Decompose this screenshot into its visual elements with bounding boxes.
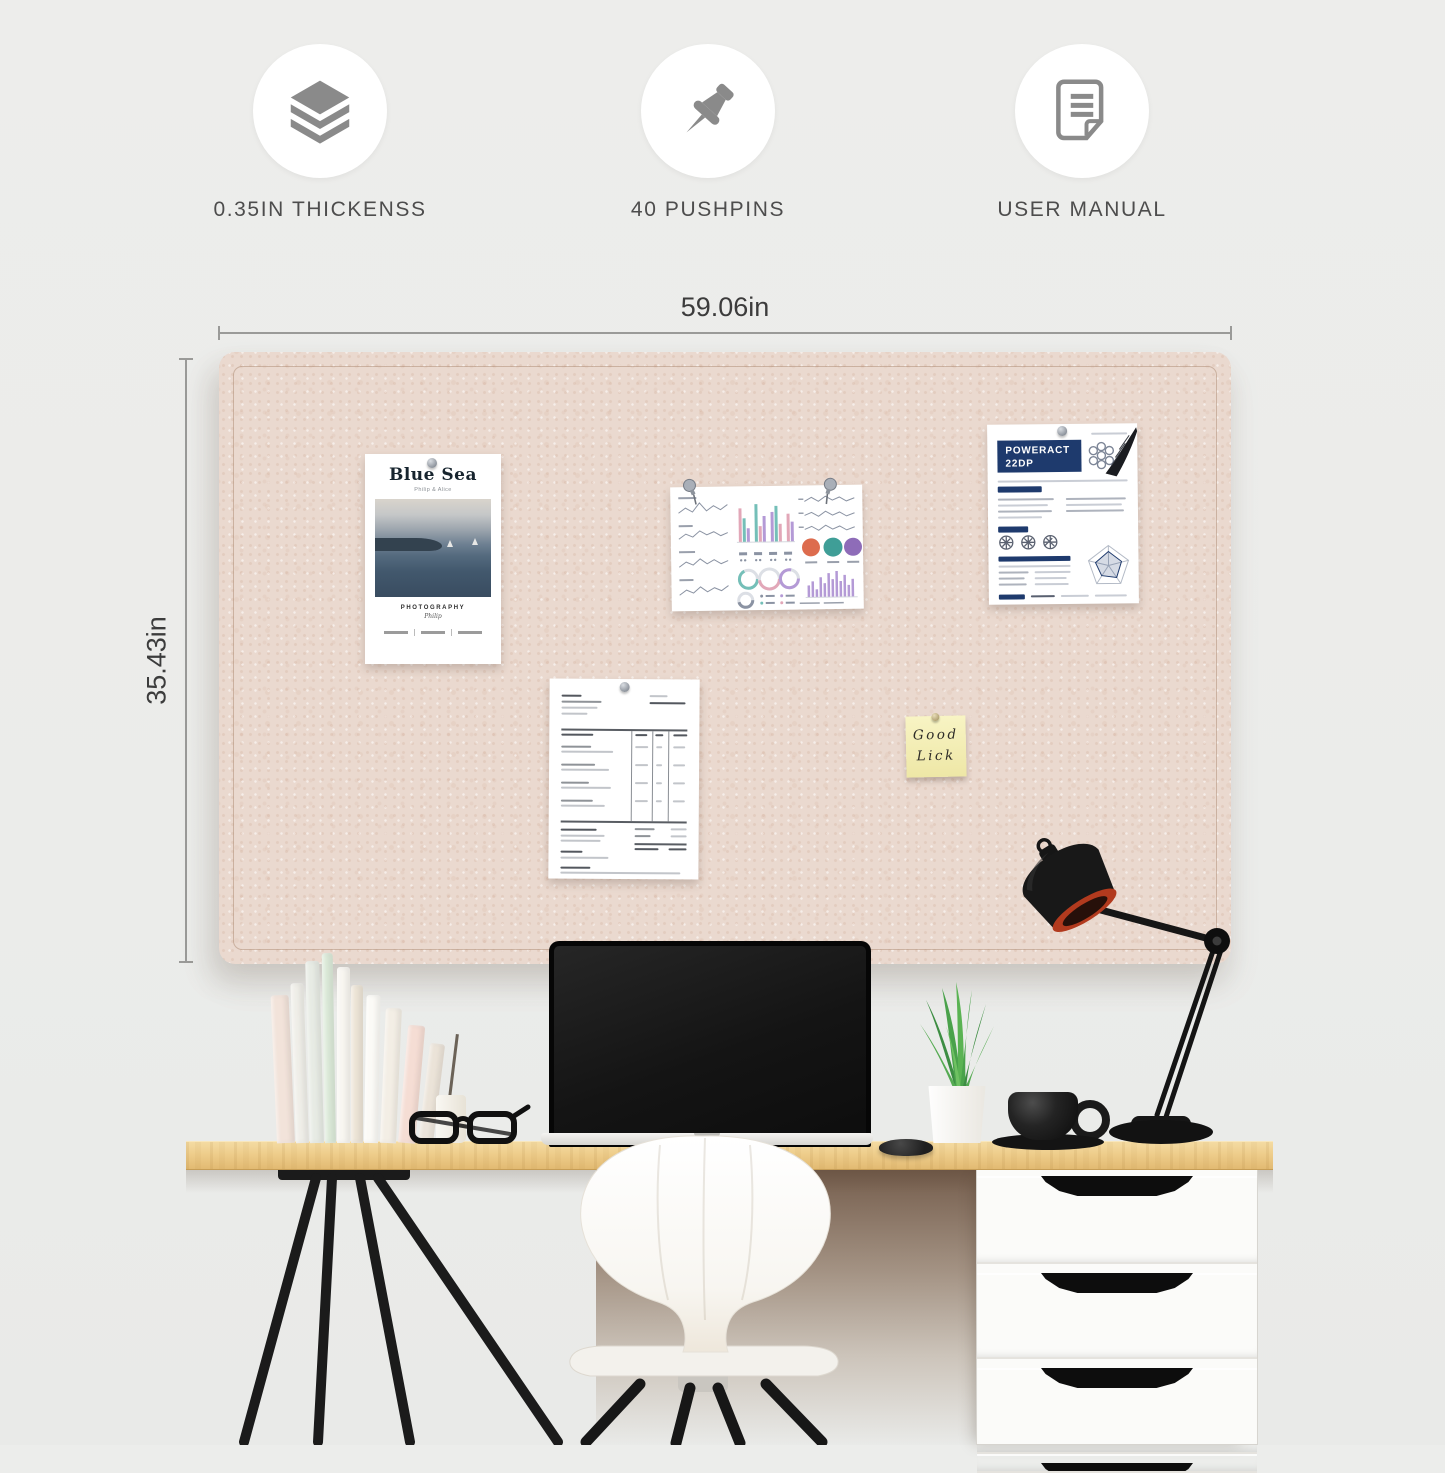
poster-title: Blue Sea <box>365 465 501 485</box>
lamp-upper-arm <box>1097 909 1217 941</box>
book-spine <box>380 1008 402 1144</box>
book-spine <box>322 953 336 1143</box>
feature-circle <box>641 44 775 178</box>
pinned-dashboard-card <box>670 485 864 612</box>
feature-thickness: 0.35IN THICKENSS <box>150 44 490 222</box>
feature-circle <box>253 44 387 178</box>
pinned-invoice <box>548 678 699 879</box>
width-dimension-line <box>218 332 1232 334</box>
poster-caption: PHOTOGRAPHY <box>365 605 501 611</box>
book-spine <box>364 995 381 1143</box>
poster-footer <box>365 629 501 636</box>
layers-icon <box>284 75 356 147</box>
pushpin <box>678 477 704 507</box>
drawer-unit <box>976 1166 1258 1445</box>
poster-sea-photo <box>375 499 491 597</box>
drawer-handle <box>1041 1368 1193 1388</box>
dimension-tick <box>179 961 193 963</box>
pinned-sticky-note: Good Lick <box>905 715 966 777</box>
feature-user-manual: USER MANUAL <box>912 44 1252 222</box>
dimension-tick <box>179 358 193 360</box>
feature-circle <box>1015 44 1149 178</box>
drawer-handle <box>1041 1463 1193 1473</box>
datasheet-title: POWERACT 22DP <box>997 440 1081 473</box>
chair-legs <box>586 1384 822 1443</box>
drawer-handle <box>1041 1273 1193 1293</box>
height-dimension-label: 35.43in <box>142 600 173 722</box>
poster-subtitle: Philip & Alice <box>365 487 501 493</box>
pushpin <box>816 476 842 506</box>
user-manual-icon <box>1046 75 1118 147</box>
product-scene: 0.35IN THICKENSS 40 PUSHPINS <box>0 0 1445 1445</box>
lamp-base <box>1109 1120 1213 1144</box>
trestle-desk-legs <box>220 1160 580 1445</box>
sticky-note-text: Good Lick <box>905 715 966 767</box>
drawer <box>977 1176 1257 1264</box>
pinned-datasheet: POWERACT 22DP <box>987 423 1139 605</box>
pushpin <box>1057 426 1067 436</box>
headland-silhouette <box>375 538 442 551</box>
lamp-lower-arm <box>1157 947 1222 1117</box>
book-spine <box>337 967 350 1143</box>
cable-photo <box>1089 427 1138 479</box>
feature-label: 40 PUSHPINS <box>538 198 878 222</box>
drawer <box>977 1273 1257 1359</box>
lamp-head <box>1004 825 1128 943</box>
height-dimension-line <box>185 358 187 963</box>
chair <box>540 1120 870 1445</box>
dimension-tick <box>1230 326 1232 340</box>
desk-lamp <box>985 825 1255 1155</box>
stirrer-stick <box>448 1034 459 1098</box>
sailboat <box>472 538 478 545</box>
drawer <box>977 1454 1257 1473</box>
plant-pot <box>926 1086 988 1143</box>
sailboat <box>447 540 453 547</box>
spec-glyphs <box>998 534 1058 551</box>
feature-label: USER MANUAL <box>912 198 1252 222</box>
width-dimension-label: 59.06in <box>560 292 890 323</box>
dimension-tick <box>218 326 220 340</box>
drawer-handle <box>1041 1176 1193 1196</box>
eyeglasses <box>406 1100 532 1150</box>
laptop-screen <box>549 941 871 1147</box>
pushpin <box>427 458 437 468</box>
radar-pentagon-chart <box>1084 541 1133 590</box>
pushpin <box>620 682 630 692</box>
poster-author: Philip <box>365 613 501 620</box>
book-spine <box>351 985 363 1143</box>
feature-pushpins: 40 PUSHPINS <box>538 44 878 222</box>
drawer <box>977 1368 1257 1454</box>
pinned-poster-blue-sea: Blue Sea Philip & Alice PHOTOGRAPHY Phil… <box>365 454 501 664</box>
computer-mouse <box>879 1139 933 1156</box>
pushpin-icon <box>672 75 744 147</box>
feature-label: 0.35IN THICKENSS <box>150 198 490 222</box>
